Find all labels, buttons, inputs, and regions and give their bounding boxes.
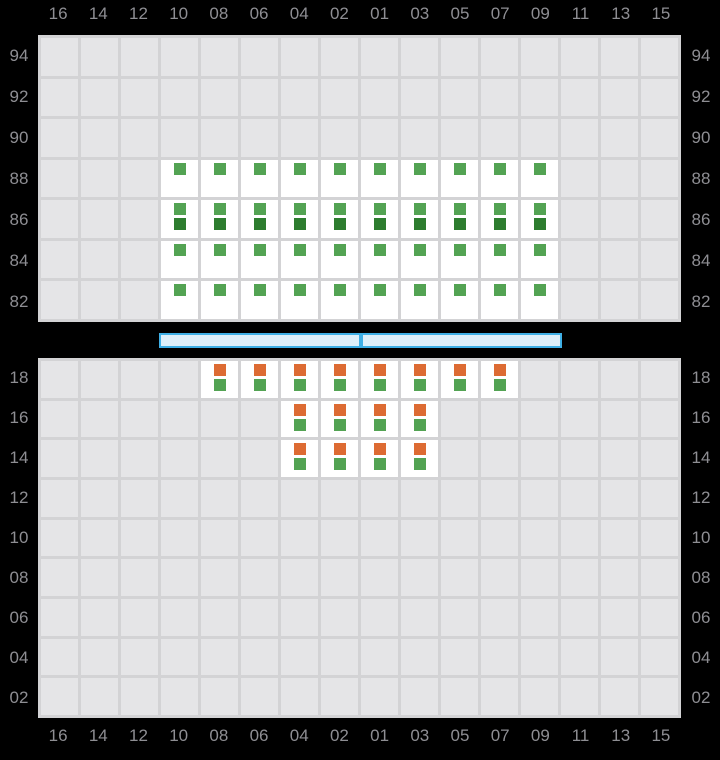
grid-cell (401, 559, 438, 596)
seat-cell[interactable] (241, 241, 278, 279)
grid-cell (521, 480, 558, 517)
seat-marker-green-icon (414, 163, 426, 175)
seat-cell[interactable] (161, 200, 198, 238)
grid-cell (321, 599, 358, 636)
grid-cell (41, 79, 78, 117)
seat-marker-dark-green-icon (374, 218, 386, 230)
column-label: 12 (118, 4, 158, 24)
seat-cell[interactable] (441, 361, 478, 398)
grid-cell (161, 38, 198, 76)
grid-cell (81, 440, 118, 477)
seat-cell[interactable] (481, 361, 518, 398)
grid-cell (41, 38, 78, 76)
upper-right-row-axis: 94929088868482 (682, 35, 720, 322)
grid-cell (441, 678, 478, 715)
grid-cell (281, 599, 318, 636)
grid-cell (601, 361, 638, 398)
seat-cell[interactable] (441, 281, 478, 319)
grid-cell (321, 79, 358, 117)
grid-cell (281, 520, 318, 557)
grid-cell (361, 559, 398, 596)
grid-cell (641, 119, 678, 157)
seat-cell[interactable] (241, 281, 278, 319)
grid-cell (281, 480, 318, 517)
seat-marker-green-icon (334, 244, 346, 256)
grid-cell (481, 559, 518, 596)
grid-cell (281, 559, 318, 596)
seat-cell[interactable] (201, 281, 238, 319)
grid-cell (441, 639, 478, 676)
seat-marker-green-icon (494, 244, 506, 256)
grid-cell (361, 119, 398, 157)
seat-cell[interactable] (361, 281, 398, 319)
grid-cell (641, 599, 678, 636)
grid-cell (41, 160, 78, 198)
column-label: 16 (38, 4, 78, 24)
grid-cell (561, 160, 598, 198)
grid-cell (521, 119, 558, 157)
seat-marker-green-icon (454, 163, 466, 175)
seat-marker-green-icon (414, 419, 426, 431)
grid-cell (41, 559, 78, 596)
grid-cell (401, 119, 438, 157)
column-label: 11 (560, 4, 600, 24)
grid-cell (481, 38, 518, 76)
column-label: 02 (319, 726, 359, 746)
aisle-divider-segment (159, 333, 361, 348)
seat-marker-green-icon (494, 379, 506, 391)
grid-cell (161, 639, 198, 676)
grid-cell (281, 678, 318, 715)
seat-cell[interactable] (361, 160, 398, 198)
grid-cell (161, 440, 198, 477)
seat-cell[interactable] (201, 200, 238, 238)
seat-cell[interactable] (401, 241, 438, 279)
grid-cell (81, 200, 118, 238)
grid-cell (561, 79, 598, 117)
seat-cell[interactable] (521, 160, 558, 198)
seat-marker-dark-green-icon (254, 218, 266, 230)
grid-cell (41, 678, 78, 715)
grid-cell (441, 599, 478, 636)
seat-marker-green-icon (294, 203, 306, 215)
seat-marker-green-icon (454, 203, 466, 215)
grid-cell (521, 401, 558, 438)
seat-marker-dark-green-icon (214, 218, 226, 230)
grid-cell (81, 361, 118, 398)
seat-marker-green-icon (334, 419, 346, 431)
seat-marker-green-icon (294, 163, 306, 175)
row-label: 86 (682, 199, 720, 240)
grid-cell (161, 401, 198, 438)
seat-marker-green-icon (454, 244, 466, 256)
grid-cell (321, 520, 358, 557)
seat-cell[interactable] (401, 361, 438, 398)
column-label: 13 (601, 4, 641, 24)
row-label: 90 (0, 117, 38, 158)
grid-cell (441, 559, 478, 596)
seat-marker-green-icon (294, 419, 306, 431)
upper-seat-chart (38, 35, 681, 322)
grid-cell (601, 599, 638, 636)
grid-cell (81, 281, 118, 319)
grid-cell (561, 520, 598, 557)
seat-cell[interactable] (281, 401, 318, 438)
seat-cell[interactable] (161, 160, 198, 198)
seat-cell[interactable] (361, 200, 398, 238)
grid-cell (201, 520, 238, 557)
row-label: 02 (0, 678, 38, 718)
seat-marker-orange-icon (294, 443, 306, 455)
seat-marker-green-icon (414, 379, 426, 391)
seat-marker-green-icon (414, 458, 426, 470)
grid-cell (201, 38, 238, 76)
seat-marker-green-icon (174, 244, 186, 256)
grid-cell (81, 559, 118, 596)
row-label: 08 (682, 558, 720, 598)
grid-cell (481, 520, 518, 557)
seat-marker-orange-icon (334, 364, 346, 376)
grid-cell (121, 361, 158, 398)
seat-marker-green-icon (334, 379, 346, 391)
grid-cell (641, 79, 678, 117)
grid-cell (121, 678, 158, 715)
seat-marker-green-icon (534, 203, 546, 215)
seat-marker-dark-green-icon (534, 218, 546, 230)
row-label: 92 (0, 76, 38, 117)
grid-cell (441, 520, 478, 557)
seat-marker-green-icon (414, 244, 426, 256)
seat-marker-green-icon (294, 379, 306, 391)
grid-cell (121, 200, 158, 238)
row-label: 04 (0, 638, 38, 678)
seat-cell[interactable] (321, 361, 358, 398)
seat-marker-green-icon (294, 458, 306, 470)
grid-cell (441, 119, 478, 157)
column-label: 04 (279, 4, 319, 24)
grid-cell (121, 639, 158, 676)
grid-cell (521, 440, 558, 477)
grid-cell (561, 678, 598, 715)
grid-cell (41, 241, 78, 279)
grid-cell (561, 119, 598, 157)
grid-cell (121, 119, 158, 157)
grid-cell (641, 281, 678, 319)
grid-cell (121, 440, 158, 477)
grid-cell (641, 440, 678, 477)
seat-cell[interactable] (241, 200, 278, 238)
grid-cell (361, 480, 398, 517)
column-label: 13 (601, 726, 641, 746)
grid-cell (601, 639, 638, 676)
grid-cell (441, 38, 478, 76)
seat-cell[interactable] (321, 241, 358, 279)
grid-cell (641, 520, 678, 557)
bottom-column-axis: 16141210080604020103050709111315 (38, 726, 681, 746)
seat-cell[interactable] (241, 361, 278, 398)
row-label: 18 (682, 358, 720, 398)
seat-cell[interactable] (321, 401, 358, 438)
grid-cell (401, 38, 438, 76)
seat-marker-orange-icon (494, 364, 506, 376)
seat-cell[interactable] (401, 440, 438, 477)
grid-cell (41, 361, 78, 398)
grid-cell (161, 678, 198, 715)
seat-marker-orange-icon (214, 364, 226, 376)
grid-cell (121, 281, 158, 319)
seat-cell[interactable] (161, 241, 198, 279)
seat-cell[interactable] (361, 401, 398, 438)
seat-marker-green-icon (214, 284, 226, 296)
grid-cell (81, 79, 118, 117)
seat-marker-orange-icon (374, 404, 386, 416)
grid-cell (641, 241, 678, 279)
grid-cell (481, 79, 518, 117)
column-label: 08 (199, 726, 239, 746)
grid-cell (561, 38, 598, 76)
grid-cell (201, 480, 238, 517)
seat-marker-green-icon (374, 284, 386, 296)
row-label: 14 (0, 438, 38, 478)
row-label: 82 (682, 281, 720, 322)
seat-marker-green-icon (174, 163, 186, 175)
seat-marker-green-icon (334, 458, 346, 470)
seat-marker-orange-icon (294, 404, 306, 416)
seat-cell[interactable] (361, 361, 398, 398)
grid-cell (361, 79, 398, 117)
grid-cell (321, 559, 358, 596)
grid-cell (601, 79, 638, 117)
seat-cell[interactable] (281, 241, 318, 279)
seat-marker-dark-green-icon (494, 218, 506, 230)
grid-cell (201, 401, 238, 438)
seat-cell[interactable] (201, 160, 238, 198)
seat-marker-green-icon (494, 163, 506, 175)
seat-marker-green-icon (534, 244, 546, 256)
column-label: 08 (199, 4, 239, 24)
grid-cell (81, 119, 118, 157)
seat-marker-green-icon (334, 203, 346, 215)
column-label: 16 (38, 726, 78, 746)
row-label: 02 (682, 678, 720, 718)
grid-cell (121, 480, 158, 517)
aisle-divider-segment (361, 333, 563, 348)
column-label: 01 (360, 726, 400, 746)
seat-cell[interactable] (401, 160, 438, 198)
column-label: 05 (440, 726, 480, 746)
seat-marker-green-icon (174, 203, 186, 215)
grid-cell (161, 361, 198, 398)
seat-cell[interactable] (161, 281, 198, 319)
seat-cell[interactable] (481, 160, 518, 198)
seat-marker-green-icon (254, 163, 266, 175)
grid-cell (201, 678, 238, 715)
lower-seat-chart (38, 358, 681, 718)
seat-marker-orange-icon (454, 364, 466, 376)
seat-marker-green-icon (214, 379, 226, 391)
column-label: 01 (360, 4, 400, 24)
seat-cell[interactable] (321, 200, 358, 238)
seat-cell[interactable] (481, 241, 518, 279)
grid-cell (561, 480, 598, 517)
grid-cell (361, 678, 398, 715)
grid-cell (641, 480, 678, 517)
grid-cell (241, 678, 278, 715)
row-label: 18 (0, 358, 38, 398)
grid-cell (121, 79, 158, 117)
column-label: 15 (641, 726, 681, 746)
row-label: 90 (682, 117, 720, 158)
column-label: 10 (159, 4, 199, 24)
grid-cell (81, 160, 118, 198)
grid-cell (561, 559, 598, 596)
seat-marker-green-icon (374, 419, 386, 431)
lower-right-row-axis: 181614121008060402 (682, 358, 720, 718)
seat-marker-orange-icon (374, 364, 386, 376)
grid-cell (161, 119, 198, 157)
column-label: 15 (641, 4, 681, 24)
grid-cell (81, 520, 118, 557)
seat-cell[interactable] (361, 440, 398, 477)
seat-marker-green-icon (334, 284, 346, 296)
column-label: 07 (480, 4, 520, 24)
seat-marker-dark-green-icon (294, 218, 306, 230)
seat-marker-green-icon (494, 203, 506, 215)
grid-cell (601, 678, 638, 715)
seat-cell[interactable] (521, 281, 558, 319)
column-label: 14 (78, 4, 118, 24)
seat-cell[interactable] (281, 200, 318, 238)
grid-cell (81, 241, 118, 279)
grid-cell (241, 599, 278, 636)
row-label: 06 (682, 598, 720, 638)
seat-cell[interactable] (321, 440, 358, 477)
grid-cell (121, 559, 158, 596)
seat-cell[interactable] (481, 281, 518, 319)
grid-cell (561, 241, 598, 279)
grid-cell (241, 639, 278, 676)
seat-marker-green-icon (374, 244, 386, 256)
seat-marker-green-icon (174, 284, 186, 296)
grid-cell (241, 559, 278, 596)
grid-cell (561, 599, 598, 636)
column-label: 04 (279, 726, 319, 746)
seat-cell[interactable] (241, 160, 278, 198)
row-label: 06 (0, 598, 38, 638)
grid-cell (481, 678, 518, 715)
grid-cell (521, 559, 558, 596)
seat-cell[interactable] (401, 401, 438, 438)
seat-marker-green-icon (334, 163, 346, 175)
grid-cell (361, 639, 398, 676)
grid-cell (321, 38, 358, 76)
seat-cell[interactable] (201, 361, 238, 398)
column-label: 02 (319, 4, 359, 24)
seat-cell[interactable] (321, 281, 358, 319)
grid-cell (241, 38, 278, 76)
seat-cell[interactable] (401, 200, 438, 238)
seat-marker-orange-icon (334, 404, 346, 416)
grid-cell (521, 361, 558, 398)
grid-cell (521, 678, 558, 715)
grid-cell (121, 241, 158, 279)
seat-cell[interactable] (441, 200, 478, 238)
grid-cell (401, 79, 438, 117)
row-label: 08 (0, 558, 38, 598)
grid-cell (441, 440, 478, 477)
column-label: 10 (159, 726, 199, 746)
grid-cell (81, 480, 118, 517)
grid-cell (601, 281, 638, 319)
seat-marker-green-icon (214, 244, 226, 256)
grid-cell (41, 401, 78, 438)
seat-marker-green-icon (454, 379, 466, 391)
row-label: 92 (682, 76, 720, 117)
seat-marker-green-icon (374, 163, 386, 175)
seat-cell[interactable] (361, 241, 398, 279)
column-label: 06 (239, 726, 279, 746)
seat-marker-green-icon (254, 379, 266, 391)
grid-cell (481, 401, 518, 438)
seat-cell[interactable] (441, 160, 478, 198)
grid-cell (401, 639, 438, 676)
seat-cell[interactable] (441, 241, 478, 279)
grid-cell (161, 79, 198, 117)
grid-cell (201, 559, 238, 596)
seat-marker-green-icon (374, 379, 386, 391)
seat-cell[interactable] (201, 241, 238, 279)
row-label: 16 (0, 398, 38, 438)
seat-cell[interactable] (281, 361, 318, 398)
grid-cell (441, 480, 478, 517)
top-column-axis: 16141210080604020103050709111315 (38, 4, 681, 24)
grid-cell (161, 559, 198, 596)
grid-cell (481, 119, 518, 157)
seat-cell[interactable] (281, 160, 318, 198)
seat-cell[interactable] (281, 440, 318, 477)
seat-cell[interactable] (321, 160, 358, 198)
seat-cell[interactable] (521, 241, 558, 279)
grid-cell (441, 401, 478, 438)
row-label: 12 (0, 478, 38, 518)
seat-cell[interactable] (521, 200, 558, 238)
grid-cell (41, 281, 78, 319)
row-label: 88 (682, 158, 720, 199)
grid-cell (41, 599, 78, 636)
row-label: 16 (682, 398, 720, 438)
seat-cell[interactable] (281, 281, 318, 319)
grid-cell (521, 79, 558, 117)
grid-cell (401, 480, 438, 517)
grid-cell (81, 38, 118, 76)
grid-cell (641, 361, 678, 398)
seat-marker-orange-icon (414, 404, 426, 416)
column-label: 14 (78, 726, 118, 746)
grid-cell (281, 639, 318, 676)
grid-cell (121, 401, 158, 438)
grid-cell (641, 401, 678, 438)
seat-map: 16141210080604020103050709111315 9492908… (0, 0, 720, 760)
grid-cell (601, 520, 638, 557)
grid-cell (601, 480, 638, 517)
grid-cell (41, 119, 78, 157)
seat-cell[interactable] (481, 200, 518, 238)
grid-cell (521, 639, 558, 676)
grid-cell (561, 639, 598, 676)
grid-cell (241, 440, 278, 477)
seat-cell[interactable] (401, 281, 438, 319)
grid-cell (361, 38, 398, 76)
